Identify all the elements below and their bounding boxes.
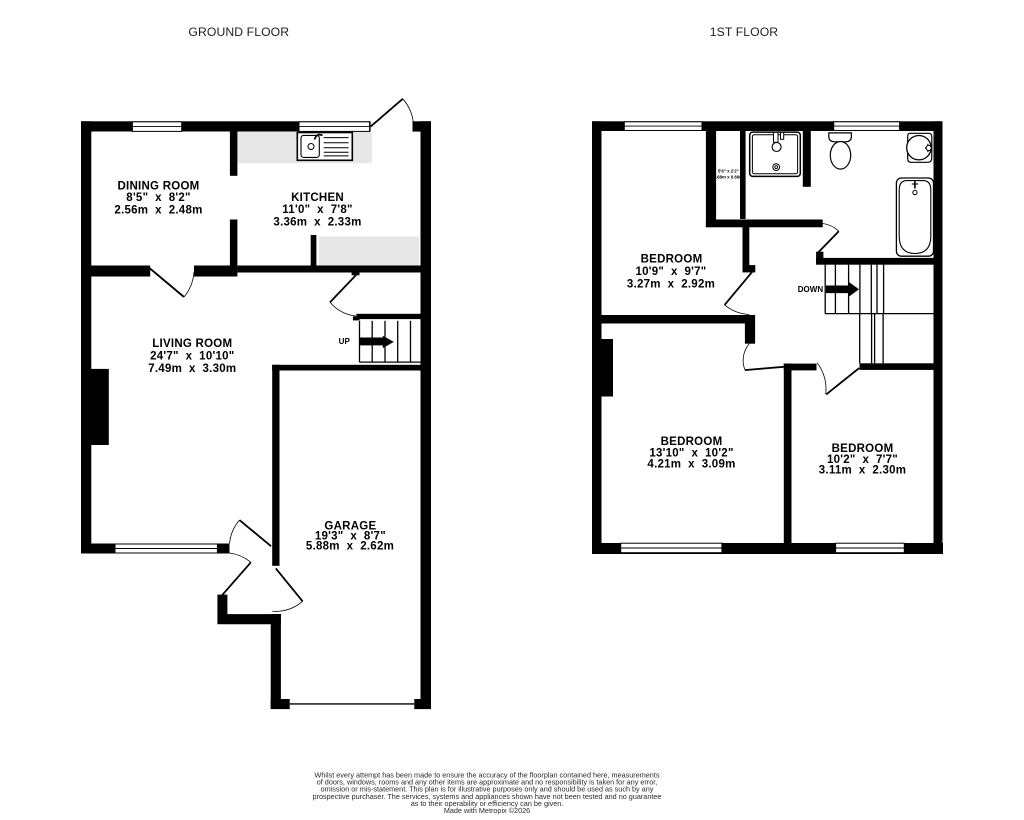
- svg-text:DOWN: DOWN: [798, 285, 824, 294]
- svg-text:13'10" x 10'2": 13'10" x 10'2": [649, 447, 733, 459]
- svg-text:UP: UP: [339, 337, 351, 346]
- svg-text:8'5" x 8'2": 8'5" x 8'2": [126, 192, 190, 204]
- svg-text:3.11m x 2.30m: 3.11m x 2.30m: [819, 465, 907, 477]
- svg-text:1.68m x 0.66m: 1.68m x 0.66m: [713, 175, 743, 180]
- svg-text:DINING ROOM: DINING ROOM: [118, 181, 200, 193]
- svg-text:5'6" x 2'2": 5'6" x 2'2": [718, 169, 739, 174]
- svg-text:KITCHEN: KITCHEN: [291, 192, 344, 204]
- svg-text:Made with Metropix ©2026: Made with Metropix ©2026: [444, 806, 530, 815]
- svg-text:LIVING ROOM: LIVING ROOM: [152, 338, 232, 350]
- svg-text:5.88m x 2.62m: 5.88m x 2.62m: [306, 541, 394, 553]
- svg-text:1ST FLOOR: 1ST FLOOR: [710, 25, 778, 39]
- svg-text:4.21m x 3.09m: 4.21m x 3.09m: [647, 459, 735, 471]
- svg-text:3.27m x 2.92m: 3.27m x 2.92m: [627, 278, 715, 290]
- svg-text:BEDROOM: BEDROOM: [641, 254, 703, 266]
- svg-text:10'9" x 9'7": 10'9" x 9'7": [635, 266, 706, 278]
- svg-text:2.56m x 2.48m: 2.56m x 2.48m: [114, 205, 202, 217]
- svg-text:GROUND FLOOR: GROUND FLOOR: [188, 25, 289, 39]
- svg-text:7.49m x 3.30m: 7.49m x 3.30m: [148, 363, 236, 375]
- svg-text:11'0" x 7'8": 11'0" x 7'8": [282, 204, 352, 216]
- svg-text:BEDROOM: BEDROOM: [661, 436, 723, 448]
- svg-text:3.36m x 2.33m: 3.36m x 2.33m: [273, 217, 361, 229]
- svg-text:24'7" x 10'10": 24'7" x 10'10": [150, 350, 234, 362]
